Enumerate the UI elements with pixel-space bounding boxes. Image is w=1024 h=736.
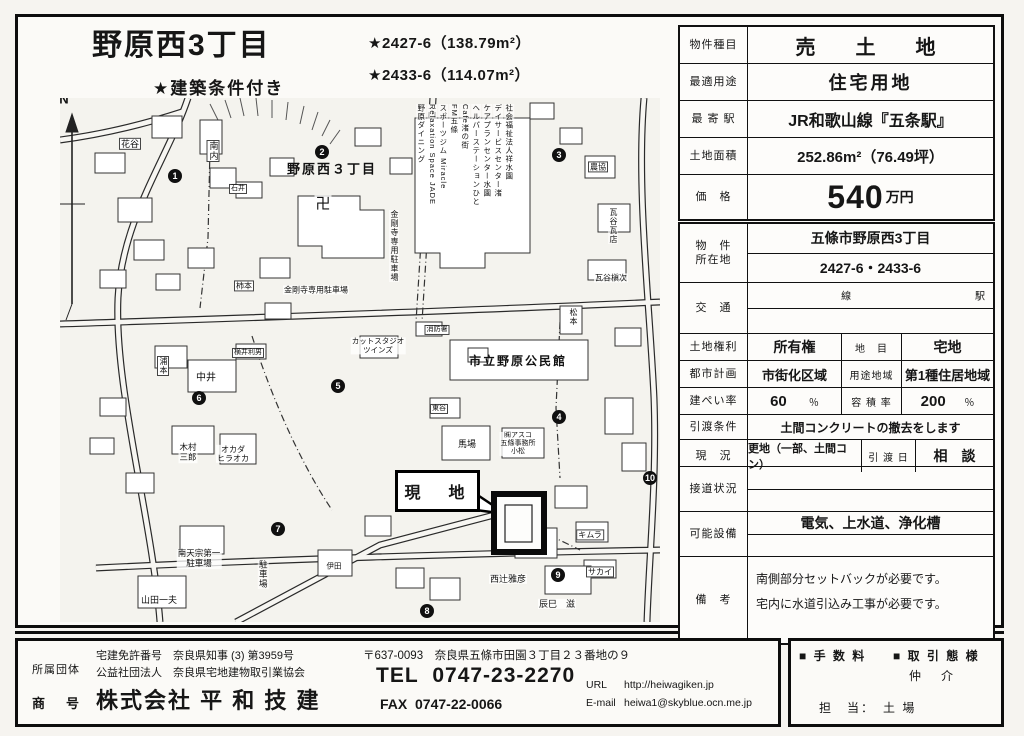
- price-unit: 万円: [886, 187, 914, 207]
- person-in-charge: 担 当： 土 場: [819, 699, 916, 716]
- map-marker-8: 8: [420, 604, 434, 618]
- transaction-type-label: ■ 取 引 態 様: [893, 647, 980, 664]
- handover-condition: 土間コンクリートの撤去をします: [748, 415, 993, 439]
- map-marker-9: 9: [551, 568, 565, 582]
- location-label: 物 件 所在地: [680, 224, 748, 282]
- map-label: 浦本: [157, 356, 169, 376]
- association-name: 公益社団法人 奈良県宅地建物取引業協会: [96, 664, 305, 680]
- company-name: 株式会社 平 和 技 建: [96, 683, 320, 715]
- tel-number: 0747-23-2270: [432, 664, 575, 687]
- land-category-label: 地 目: [842, 334, 902, 360]
- map-label: 西辻雅彦: [489, 574, 527, 584]
- north-arrow-icon: [60, 114, 85, 320]
- detail-table: 物 件 所在地 五條市野原西3丁目 2427-6・2433-6 交 通 線 駅 …: [678, 222, 995, 645]
- map-label: 金剛寺専用駐車場: [389, 210, 399, 282]
- map-label: 横井利男: [232, 348, 264, 358]
- map-label: 市立野原公民館: [468, 355, 568, 369]
- map-label: 石井: [229, 184, 247, 194]
- land-right: 所有権: [748, 334, 842, 360]
- summary-table: 物件種目売 土 地 最適用途住宅用地 最 寄 駅JR和歌山線『五条駅』 土地面積…: [678, 25, 995, 221]
- site-parcel: [494, 494, 544, 552]
- utilities-label: 可能設備: [680, 512, 748, 556]
- map-label: キムラ: [576, 529, 604, 540]
- email-label: E-mail: [586, 697, 624, 709]
- north-label: N: [60, 98, 70, 107]
- map-label: カットスタジオ ツインズ: [351, 337, 406, 354]
- location-map: N 現 地 花谷南内野原西３丁目卍金剛寺専用駐車場金剛寺専用駐車場石井柿本農協瓦…: [60, 98, 660, 622]
- floor-ratio-label: 容 積 率: [842, 388, 902, 414]
- utilities-empty: [748, 534, 993, 557]
- fax-line: FAX 0747-22-0066: [380, 696, 502, 712]
- handover-condition-label: 引渡条件: [680, 415, 748, 439]
- map-marker-10: 10: [643, 471, 657, 485]
- map-label: 瓦谷瓦店: [608, 208, 618, 244]
- road-access-empty-1: [748, 467, 993, 489]
- map-marker-7: 7: [271, 522, 285, 536]
- map-label: Cafe渚の街: [460, 104, 470, 149]
- floor-ratio: 200: [921, 393, 946, 410]
- association-label: 所属団体: [32, 661, 80, 677]
- map-label: 南天宗第一 駐車場: [177, 549, 222, 569]
- map-label: 柿本: [234, 280, 254, 291]
- land-area: 252.86m²（76.49坪）: [748, 138, 993, 174]
- percent-sign: ％: [809, 394, 819, 409]
- remarks-line-1: 南側部分セットバックが必要です。: [756, 567, 985, 592]
- map-label: 野原ダイニング: [416, 104, 426, 164]
- map-marker-1: 1: [168, 169, 182, 183]
- map-label: FM五條: [449, 104, 459, 134]
- map-marker-4: 4: [552, 410, 566, 424]
- coverage-ratio: 60: [770, 393, 787, 410]
- remarks-line-2: 宅内に水道引込み工事が必要です。: [756, 592, 985, 617]
- tel-label: TEL: [376, 664, 419, 687]
- company-address: 〒637-0093 奈良県五條市田園３丁目２３番地の９: [363, 647, 630, 663]
- price-label: 価 格: [680, 175, 748, 219]
- building-condition-note: ★建築条件付き: [153, 74, 284, 99]
- land-category: 宅地: [902, 334, 993, 360]
- zoning: 第1種住居地域: [902, 361, 993, 387]
- tel-line: TEL 0747-23-2270: [376, 664, 575, 688]
- map-label: 社会福祉法人祥水園: [504, 104, 514, 181]
- remarks: 南側部分セットバックが必要です。 宅内に水道引込み工事が必要です。: [748, 557, 993, 643]
- map-label: オカダ ヒラオカ: [216, 445, 250, 463]
- map-marker-6: 6: [192, 391, 206, 405]
- map-label: 野原西３丁目: [286, 163, 378, 178]
- summary-label: 最 寄 駅: [680, 101, 748, 137]
- station-placeholder: 駅: [975, 288, 985, 303]
- site-callout: 現 地: [395, 470, 480, 512]
- license-number: 宅建免許番号 奈良県知事 (3) 第3959号: [96, 647, 294, 663]
- map-label: 瓦谷槇次: [594, 273, 628, 282]
- url-label: URL: [586, 679, 624, 691]
- map-label: 金剛寺専用駐車場: [283, 285, 349, 294]
- transaction-type: 仲 介: [909, 667, 957, 684]
- map-label: 松本: [568, 308, 578, 326]
- percent-sign: ％: [964, 394, 974, 409]
- email-line: E-mailheiwa1@skyblue.ocn.me.jp: [586, 697, 752, 709]
- map-label: ㈱アスコ 五條事務所 小松: [500, 432, 537, 456]
- map-label: 農協: [588, 161, 608, 172]
- remarks-label: 備 考: [680, 557, 748, 643]
- flyer-page: 野原西3丁目 ★2427-6（138.79m²） ★2433-6（114.07m…: [0, 0, 1024, 736]
- map-label: 東谷: [430, 404, 448, 414]
- map-label: Relaxation Space JADE: [427, 104, 437, 205]
- map-label: 伊田: [326, 563, 343, 572]
- zoning-label: 用途地域: [842, 361, 902, 387]
- utilities: 電気、上水道、浄化槽: [748, 512, 993, 534]
- summary-label: 物件種目: [680, 27, 748, 63]
- location-lots: 2427-6・2433-6: [748, 253, 993, 283]
- location-city: 五條市野原西3丁目: [748, 224, 993, 253]
- map-label: 消防署: [425, 325, 450, 335]
- url-line: URLhttp://heiwagiken.jp: [586, 679, 714, 691]
- map-label: 山田一夫: [140, 595, 178, 605]
- road-access-empty-2: [748, 489, 993, 512]
- map-label: 馬場: [457, 439, 477, 449]
- map-label: 花谷: [119, 138, 141, 150]
- property-type: 売 土 地: [748, 27, 993, 63]
- map-marker-5: 5: [331, 379, 345, 393]
- lot-annotation-1: ★2427-6（138.79m²）: [368, 32, 531, 53]
- price: 540 万円: [748, 175, 993, 219]
- map-label: スポーツジム Miracle: [438, 104, 448, 189]
- map-label: 木村 三郎: [178, 443, 197, 463]
- transport-label: 交 通: [680, 283, 748, 333]
- map-label: デイサービスセンター渚: [493, 104, 503, 198]
- fax-number: 0747-22-0066: [415, 696, 502, 712]
- summary-label: 最適用途: [680, 64, 748, 100]
- map-marker-2: 2: [315, 145, 329, 159]
- city-planning: 市街化区域: [748, 361, 842, 387]
- map-label: 辰巳 滋: [538, 599, 576, 609]
- line-placeholder: 線: [841, 288, 851, 303]
- best-use: 住宅用地: [748, 64, 993, 100]
- summary-label: 土地面積: [680, 138, 748, 174]
- url-value: http://heiwagiken.jp: [624, 679, 714, 691]
- map-label: 卍: [314, 195, 331, 212]
- company-info-box: 所属団体 商 号 宅建免許番号 奈良県知事 (3) 第3959号 公益社団法人 …: [15, 638, 781, 727]
- nearest-station: JR和歌山線『五条駅』: [748, 101, 993, 137]
- map-label: ケアプランセンター水園: [482, 104, 492, 198]
- transaction-box: ■ 手 数 料 ■ 取 引 態 様 仲 介 担 当： 土 場: [788, 638, 1004, 727]
- price-value: 540: [827, 179, 883, 216]
- coverage-ratio-label: 建ぺい率: [680, 388, 748, 414]
- email-value: heiwa1@skyblue.ocn.me.jp: [624, 697, 752, 709]
- map-label: 中井: [195, 372, 217, 384]
- road-access-label: 接道状況: [680, 467, 748, 511]
- map-marker-3: 3: [552, 148, 566, 162]
- lot-annotation-2: ★2433-6（114.07m²）: [368, 64, 530, 85]
- page-title: 野原西3丁目: [92, 20, 271, 64]
- map-label: 駐車場: [258, 560, 269, 589]
- trade-name-label: 商 号: [32, 693, 83, 712]
- fee-label: ■ 手 数 料: [799, 647, 866, 664]
- fax-label: FAX: [380, 696, 407, 712]
- transport-empty: [748, 308, 993, 334]
- map-label: ヘルパーステーションひと: [471, 104, 481, 206]
- land-right-label: 土地権利: [680, 334, 748, 360]
- map-label: 南内: [207, 140, 220, 162]
- map-label: サカイ: [586, 566, 614, 577]
- city-planning-label: 都市計画: [680, 361, 748, 387]
